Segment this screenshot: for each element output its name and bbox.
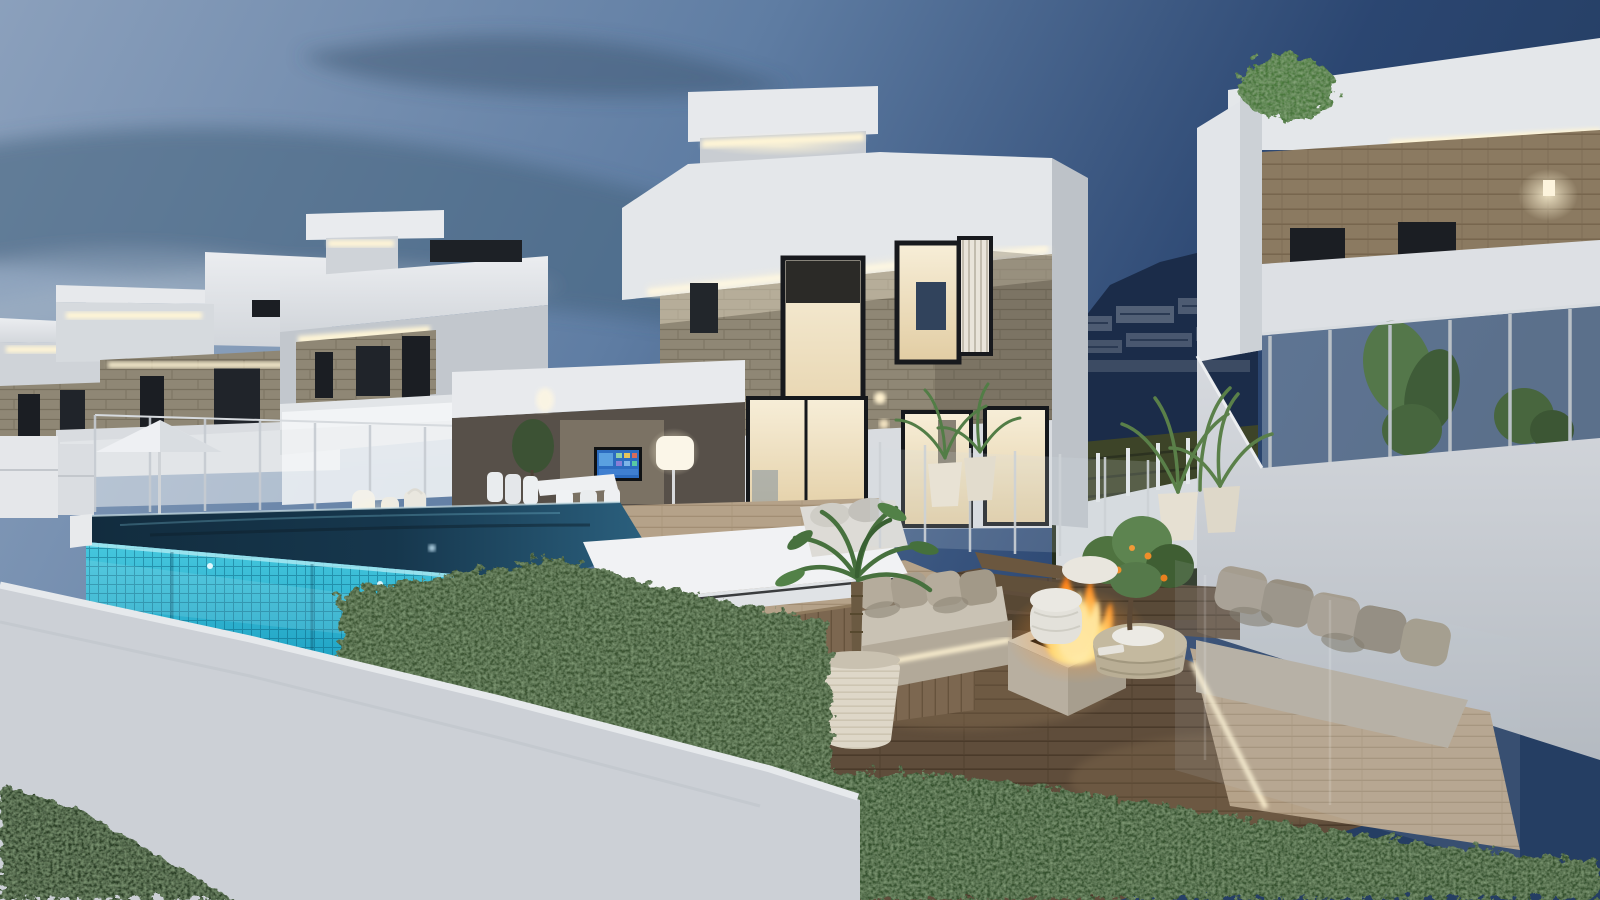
window-upper-small [690, 283, 718, 333]
scene-canvas [0, 0, 1600, 900]
outdoor-kitchen-block [0, 436, 94, 518]
wicker-stool [1030, 588, 1082, 644]
window-upper-blinds [959, 238, 991, 354]
villa-rendering [0, 0, 1600, 900]
window-upper-warm [897, 243, 959, 362]
covered-terrace [452, 360, 745, 524]
roof-shrub [1240, 56, 1336, 120]
pool-rim [70, 514, 92, 548]
coffee-table [1093, 623, 1187, 679]
